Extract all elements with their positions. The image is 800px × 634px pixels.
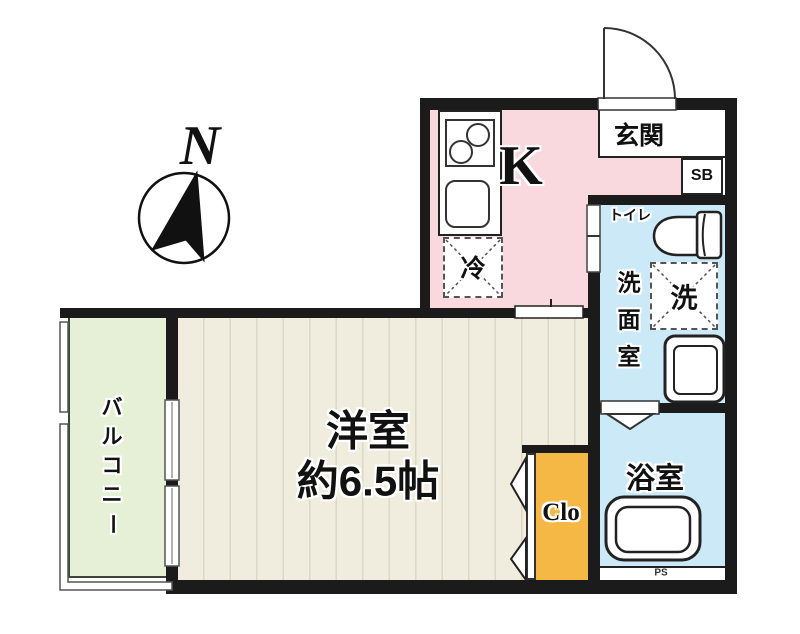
wall-kitchen-left (420, 98, 430, 318)
north-label: N (180, 114, 220, 178)
entrance-door-icon (598, 28, 676, 110)
shoe-box-label: SB (691, 167, 713, 185)
pipe-space-label: PS (654, 568, 667, 579)
floor-plan: N 玄関 SB K 冷 トイレ 洗 洗 面 室 浴室 PS 洋室 約6.5帖 C… (0, 0, 800, 634)
wall-middle-vertical (588, 195, 600, 594)
wall-bath-divider (600, 403, 737, 413)
kitchen-area-right (598, 158, 681, 195)
washing-machine-label: 洗 (671, 277, 698, 316)
wall-room-left (166, 308, 178, 594)
refrigerator-label: 冷 (460, 249, 485, 285)
balcony-label: バ ル コ ニ ー (102, 394, 123, 539)
washroom-label: 洗 面 室 (618, 265, 641, 376)
toilet-label: トイレ (609, 205, 651, 225)
wall-top-kitchen-left (420, 98, 598, 110)
wall-bottom (166, 580, 737, 594)
wall-right (725, 98, 737, 594)
main-room-size-label: 約6.5帖 (297, 448, 439, 509)
wall-washroom-top (588, 195, 737, 205)
bathroom-label: 浴室 (626, 455, 684, 497)
kitchen-counter (438, 110, 502, 236)
entrance-label: 玄関 (614, 116, 664, 152)
closet-door (526, 453, 536, 580)
wall-closet-top (522, 445, 588, 453)
compass-icon (139, 172, 229, 263)
wall-top-main (60, 308, 515, 318)
closet-label: Clo (542, 499, 580, 527)
kitchen-label: K (499, 134, 543, 198)
